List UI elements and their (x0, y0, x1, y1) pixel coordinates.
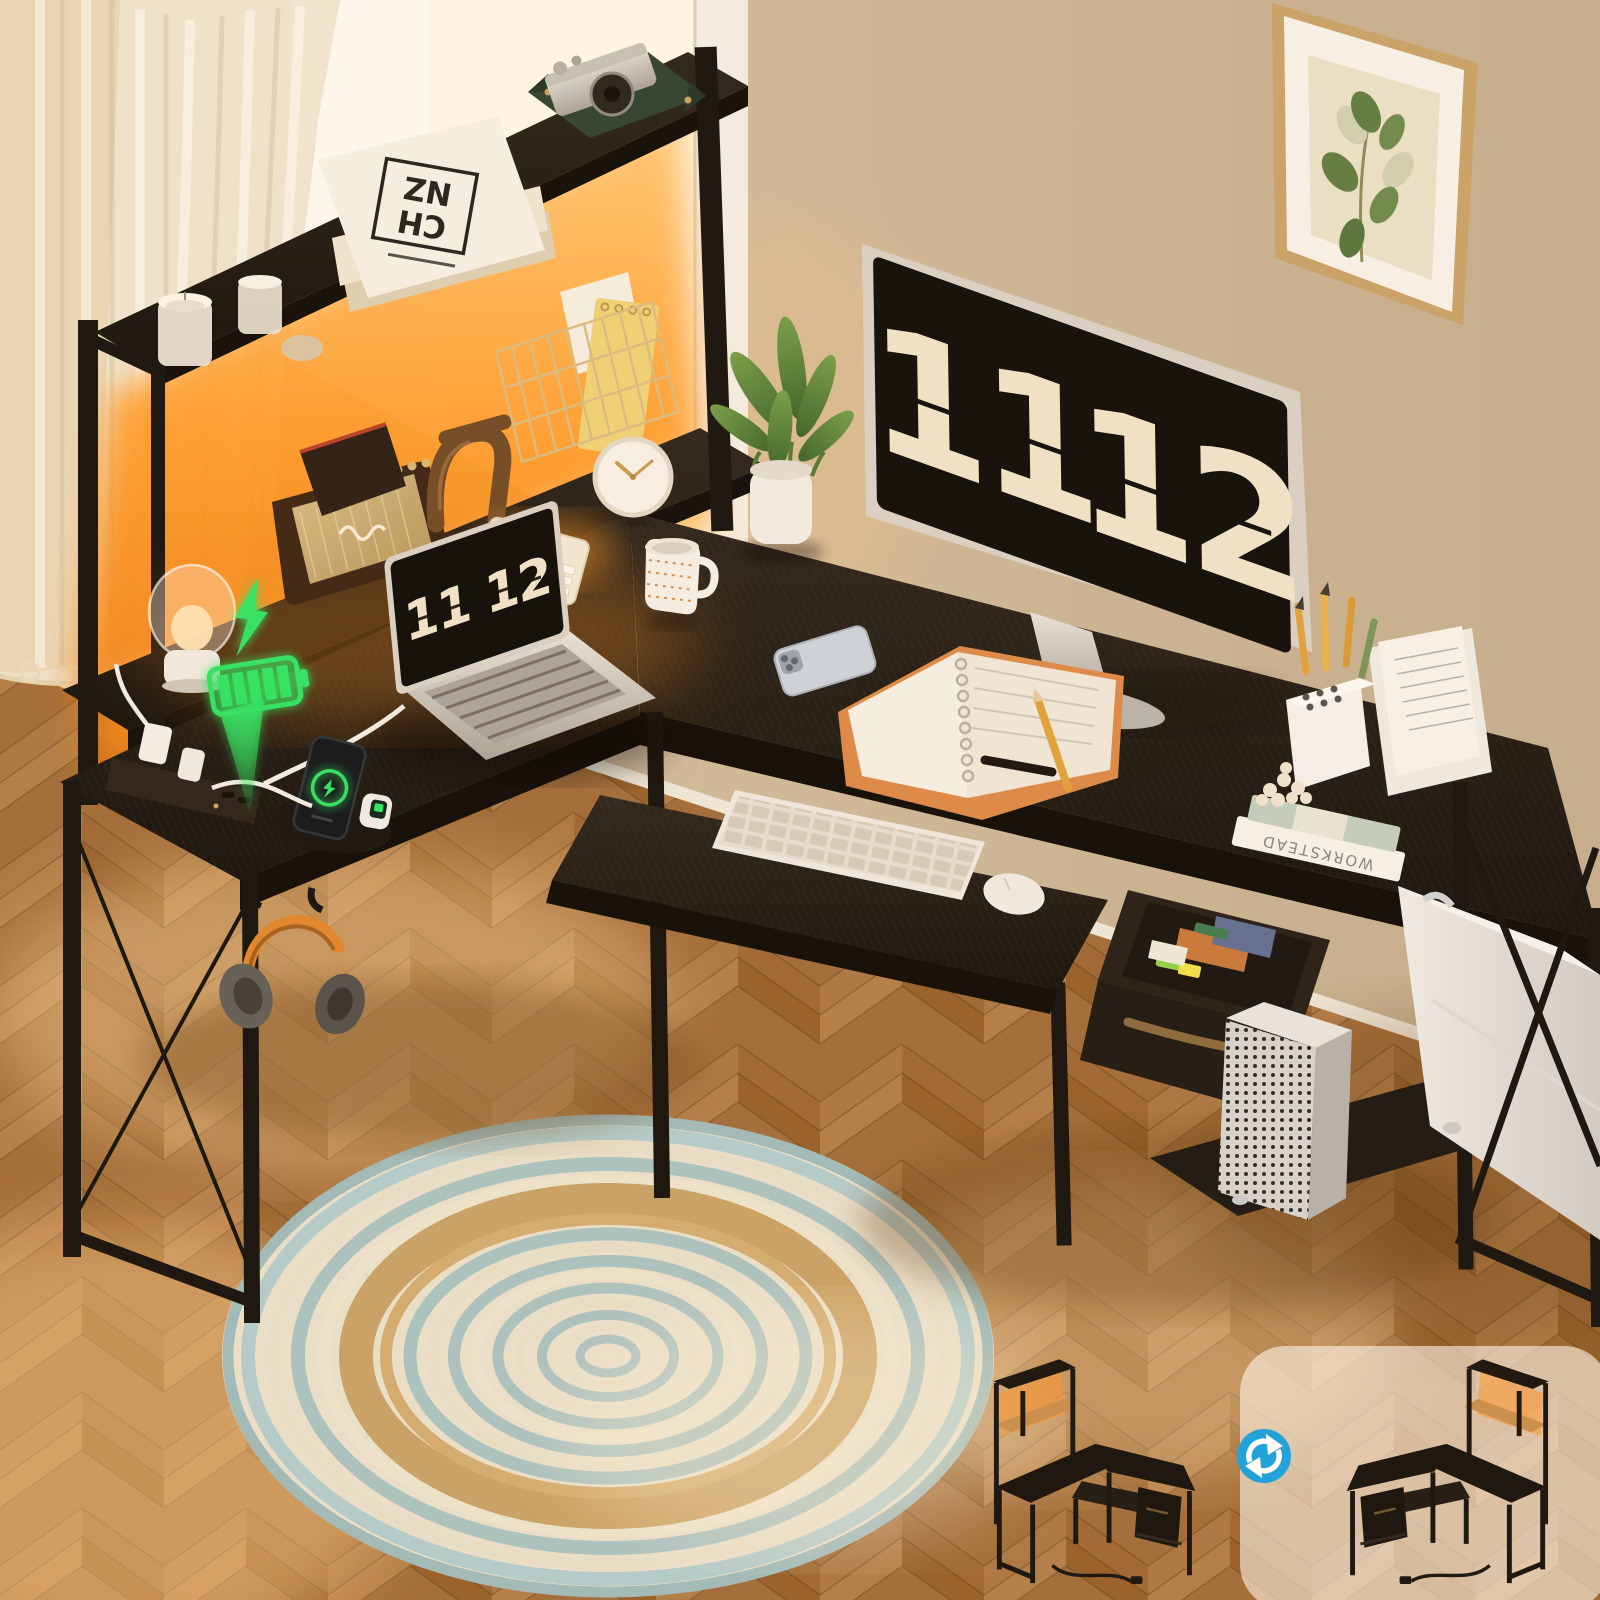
product-photo-scene: CH NZ (0, 0, 1600, 1600)
warm-light-wash (0, 0, 1600, 1600)
scene-svg: CH NZ (0, 0, 1600, 1600)
